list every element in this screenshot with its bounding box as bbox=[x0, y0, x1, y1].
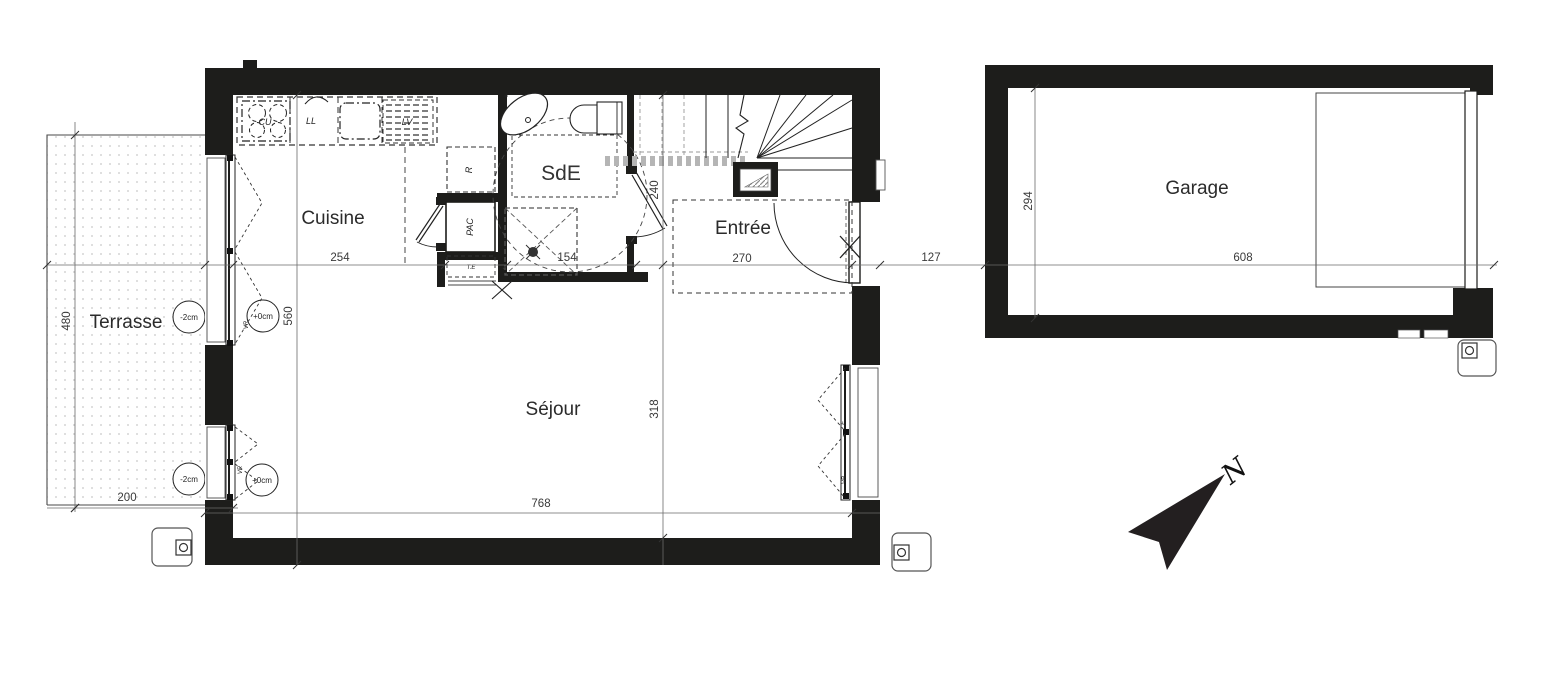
dishwasher-icon: LV bbox=[383, 100, 433, 143]
bathroom: SdE bbox=[493, 85, 667, 275]
window-type-label: F bbox=[841, 421, 847, 425]
technical-closets: R PAC T.E bbox=[416, 147, 512, 299]
break-line bbox=[736, 95, 748, 158]
meter-box-garage bbox=[1458, 340, 1496, 376]
threshold bbox=[448, 281, 496, 285]
wall-notch bbox=[1424, 330, 1448, 338]
closet-door-arc bbox=[417, 242, 438, 247]
window-shutter-label: VR bbox=[238, 465, 244, 474]
wall-sde-east-2 bbox=[627, 238, 634, 282]
terrace: Terrasse -2cm +0cm -2cm +0cm bbox=[47, 135, 279, 505]
bathroom-label: SdE bbox=[541, 162, 581, 185]
hinge bbox=[227, 340, 233, 346]
heat-pump-label: PAC bbox=[465, 218, 475, 236]
closet-door-leaf bbox=[416, 204, 443, 242]
hinge bbox=[227, 248, 233, 254]
meter-box-center bbox=[892, 533, 931, 571]
garage-wall-south bbox=[985, 315, 1455, 338]
meter-boxes bbox=[152, 340, 1496, 571]
north-letter: N bbox=[1215, 451, 1255, 491]
washer-label: LL bbox=[306, 116, 316, 126]
level-terrace-lower: -2cm bbox=[180, 475, 198, 484]
faucet-icon bbox=[305, 97, 328, 104]
level-terrace-upper: -2cm bbox=[180, 313, 198, 322]
garage-wall-north bbox=[985, 65, 1493, 88]
hinge bbox=[843, 429, 849, 435]
bathroom-door-arc bbox=[635, 228, 665, 237]
entry-zone: Entrée bbox=[673, 200, 852, 293]
dim-garage-width: 608 bbox=[1233, 252, 1252, 264]
dim-entry-width: 270 bbox=[732, 253, 751, 265]
garage: Garage bbox=[985, 65, 1493, 338]
window-outer-frame bbox=[207, 427, 225, 498]
stair-radiator bbox=[733, 162, 778, 197]
door-x-mark bbox=[492, 281, 512, 299]
floor-plan-canvas: Terrasse -2cm +0cm -2cm +0cm bbox=[0, 0, 1561, 688]
meter-box-left bbox=[152, 528, 192, 566]
window-outer-frame bbox=[858, 368, 878, 497]
level-interior-upper: +0cm bbox=[253, 312, 273, 321]
dim-hall-depth: 240 bbox=[649, 180, 661, 199]
door-hinge-block bbox=[626, 166, 637, 174]
dim-terrace-width: 200 bbox=[117, 492, 136, 504]
window-shutter-label: VR bbox=[244, 320, 250, 329]
dim-gap-width: 127 bbox=[921, 252, 940, 264]
cooktop-icon: CU bbox=[242, 101, 290, 141]
sink-icon bbox=[340, 103, 380, 139]
dim-house-width: 768 bbox=[531, 498, 550, 510]
wall-east-2 bbox=[852, 286, 880, 365]
door-swing-arc bbox=[774, 203, 854, 283]
burner bbox=[270, 105, 287, 122]
wall-sde-south bbox=[498, 272, 648, 282]
north-arrow-icon bbox=[1128, 474, 1225, 570]
winder-treads bbox=[745, 95, 852, 170]
dishwasher-label: LV bbox=[402, 117, 414, 127]
window-shutter-label: VR bbox=[842, 475, 848, 484]
electrical-panel-label: T.E bbox=[467, 265, 477, 271]
hinge bbox=[227, 459, 233, 465]
garage-door-panel bbox=[1465, 91, 1477, 289]
dim-terrace-height: 480 bbox=[61, 311, 73, 330]
kitchen-label: Cuisine bbox=[301, 208, 364, 229]
wall-notch bbox=[243, 60, 257, 68]
dim-bathroom-width: 154 bbox=[557, 252, 577, 264]
north-arrow: N bbox=[1128, 451, 1255, 570]
cooktop-label: CU bbox=[259, 117, 272, 127]
exterior-fixture bbox=[876, 160, 885, 190]
window-outer-frame bbox=[207, 158, 225, 342]
dim-kitchen-width: 254 bbox=[330, 252, 350, 264]
hinge bbox=[227, 494, 233, 500]
hinge bbox=[843, 493, 849, 499]
storage-label: R bbox=[464, 166, 474, 173]
wall-east-3 bbox=[852, 500, 880, 565]
wall-west-2 bbox=[205, 345, 233, 425]
floor-plan-svg: Terrasse -2cm +0cm -2cm +0cm bbox=[0, 0, 1561, 688]
garage-wall-east-bottom bbox=[1453, 288, 1493, 338]
wall-south bbox=[205, 538, 880, 565]
house-walls bbox=[205, 60, 880, 565]
dim-living-depth: 318 bbox=[649, 399, 661, 418]
wall-west-1 bbox=[205, 68, 233, 155]
hinge bbox=[227, 425, 233, 431]
wall-west-3 bbox=[205, 500, 233, 565]
entry-label: Entrée bbox=[715, 218, 771, 239]
turning-circle bbox=[493, 118, 647, 272]
wall-notch bbox=[1398, 330, 1420, 338]
living-label: Séjour bbox=[526, 399, 582, 420]
dim-garage-depth: 294 bbox=[1023, 191, 1035, 211]
hinge bbox=[227, 155, 233, 161]
garage-door-track bbox=[1316, 93, 1468, 287]
burner bbox=[271, 123, 286, 138]
hinge bbox=[843, 365, 849, 371]
dim-house-depth: 560 bbox=[283, 306, 295, 325]
garage-wall-west bbox=[985, 65, 1008, 338]
terrace-label: Terrasse bbox=[90, 312, 163, 333]
garage-label: Garage bbox=[1165, 178, 1228, 199]
entry-outline bbox=[673, 200, 852, 293]
kitchen: CU LL LV Cuisine bbox=[237, 97, 437, 263]
wall-north bbox=[205, 68, 880, 95]
toilet-icon bbox=[570, 102, 622, 134]
wall-te-west bbox=[437, 252, 445, 287]
